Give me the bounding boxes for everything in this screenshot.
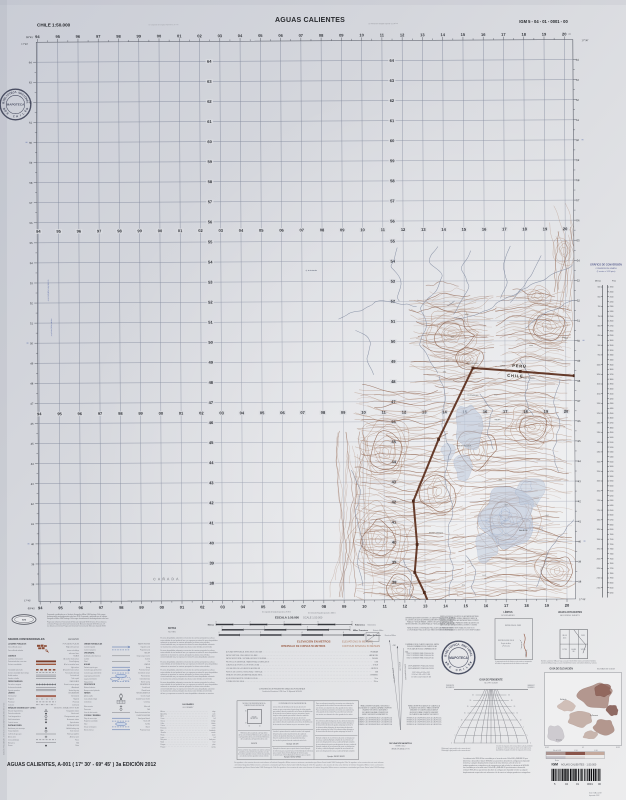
svg-text:Spring: Spring	[146, 667, 150, 669]
svg-text:Ejemplo: 345912 678345: Ejemplo: 345912 678345	[284, 757, 301, 759]
svg-text:2100: 2100	[597, 578, 601, 580]
svg-text:45: 45	[31, 442, 35, 446]
svg-text:PERÚ: PERÚ	[512, 363, 527, 369]
svg-text:10: 10	[461, 720, 463, 722]
svg-text:V. Tacora: V. Tacora	[556, 740, 562, 742]
svg-text:Pies: Pies	[612, 281, 616, 283]
svg-text:5067: 5067	[451, 336, 455, 338]
svg-text:02: 02	[200, 604, 205, 609]
svg-text:Tank reservoir: Tank reservoir	[70, 731, 80, 733]
svg-text:Kilómetros: Kilómetros	[355, 624, 365, 627]
svg-text:62: 62	[390, 98, 395, 103]
svg-text:Salar: Salar	[84, 724, 88, 726]
svg-text:7300: 7300	[610, 549, 614, 551]
svg-text:40: 40	[578, 539, 582, 543]
svg-text:39: 39	[578, 560, 582, 564]
svg-text:1300: 1300	[597, 423, 601, 425]
svg-text:6700: 6700	[610, 520, 614, 522]
svg-text:1600: 1600	[597, 481, 601, 483]
svg-text:61: 61	[29, 121, 33, 125]
svg-text:2000: 2000	[597, 558, 601, 560]
svg-text:7200: 7200	[610, 544, 614, 546]
svg-text:05: 05	[261, 604, 266, 609]
svg-text:3900: 3900	[610, 384, 614, 386]
svg-text:53: 53	[577, 279, 581, 283]
svg-text:Comunal: Comunal	[8, 704, 14, 706]
svg-text:15: 15	[464, 713, 466, 715]
svg-text:4.000: 4.000	[594, 750, 598, 752]
svg-text:Regional: Regional	[8, 699, 14, 701]
svg-text:4668: 4668	[482, 575, 486, 577]
svg-text:850: 850	[598, 335, 601, 337]
svg-text:Gorge canyon ravine: Gorge canyon ravine	[137, 655, 151, 657]
svg-text:98: 98	[118, 411, 123, 416]
svg-text:LUGARES POBLADOS: LUGARES POBLADOS	[8, 643, 27, 646]
svg-text:52: 52	[30, 301, 34, 305]
svg-text:3400: 3400	[610, 360, 614, 362]
svg-text:6600: 6600	[610, 515, 614, 517]
svg-text:Millas Terrestres: Millas Terrestres	[353, 629, 368, 632]
svg-text:CAMINOS: CAMINOS	[8, 654, 17, 657]
svg-text:6800: 6800	[610, 524, 614, 526]
svg-text:★: ★	[2, 107, 5, 111]
svg-text:3000: 3000	[610, 340, 614, 342]
svg-text:Mina socavón: Mina socavón	[84, 706, 93, 708]
svg-text:80: 80	[28, 543, 30, 545]
svg-text:04: 04	[241, 604, 246, 609]
svg-text:2050: 2050	[597, 568, 601, 570]
svg-text:10: 10	[360, 227, 365, 232]
svg-text:54: 54	[30, 261, 34, 265]
svg-text:69°45': 69°45'	[26, 35, 34, 39]
svg-text:04: 04	[240, 410, 245, 415]
svg-text:20: 20	[467, 706, 469, 708]
svg-text:06: 06	[281, 604, 286, 609]
svg-text:7500: 7500	[610, 558, 614, 560]
svg-text:56: 56	[390, 218, 395, 223]
svg-text:38: 38	[31, 582, 35, 586]
svg-text:54: 54	[390, 259, 395, 264]
svg-text:7800: 7800	[610, 573, 614, 575]
svg-text:Hito V Talakolpa: Hito V Talakolpa	[466, 362, 478, 365]
svg-text:1150: 1150	[597, 393, 601, 395]
svg-text:56: 56	[208, 219, 213, 224]
svg-text:Salar de Ajatire: Salar de Ajatire	[523, 376, 535, 379]
svg-text:place: place	[212, 716, 216, 718]
svg-text:Mal paso: Mal paso	[161, 739, 167, 741]
svg-text:51: 51	[391, 319, 396, 324]
svg-text:03: 03	[219, 228, 224, 233]
svg-text:06: 06	[280, 410, 285, 415]
svg-text:Ruins: Ruins	[75, 745, 79, 747]
svg-text:49: 49	[208, 360, 213, 365]
svg-text:38: 38	[210, 581, 215, 586]
svg-text:LÍMITES: LÍMITES	[8, 692, 16, 695]
svg-text:51: 51	[577, 319, 581, 323]
svg-text:6: 6	[343, 632, 344, 634]
svg-text:7600: 7600	[610, 563, 614, 565]
svg-text:DECLINACIÓN MAGNÉTICA: DECLINACIÓN MAGNÉTICA	[389, 742, 412, 745]
svg-text:10: 10	[361, 410, 366, 415]
svg-text:52: 52	[208, 300, 213, 305]
svg-text:19: 19	[543, 226, 548, 231]
svg-text:44: 44	[31, 462, 35, 466]
svg-text:LEGEND: LEGEND	[68, 637, 79, 641]
svg-text:ENERO 2012: ENERO 2012	[396, 746, 406, 748]
svg-text:IGM: IGM	[22, 620, 26, 622]
svg-text:61: 61	[207, 119, 212, 124]
svg-text:05: 05	[258, 33, 263, 38]
svg-text:Chaca: Chaca	[161, 720, 166, 722]
svg-text:NOTES: NOTES	[168, 631, 176, 633]
svg-text:Cueva: Cueva	[161, 725, 166, 727]
svg-text:4900: 4900	[610, 432, 614, 434]
svg-text:4000: 4000	[610, 389, 614, 391]
svg-text:Rocks cliff: Rocks cliff	[143, 721, 150, 723]
svg-text:N 364 m E 188 m 2012 N 364: N 364 m E 188 m 2012 N 364	[412, 674, 431, 676]
svg-text:09: 09	[341, 410, 346, 415]
svg-text:60: 60	[29, 141, 33, 145]
svg-text:5158: 5158	[499, 479, 503, 481]
svg-text:07: 07	[301, 604, 306, 609]
svg-text:Collo: Collo	[161, 723, 165, 725]
svg-text:5122: 5122	[506, 559, 510, 561]
svg-text:4800: 4800	[610, 427, 614, 429]
svg-text:GRÁFICO DE CONVERSIÓN: GRÁFICO DE CONVERSIÓN	[590, 264, 622, 267]
svg-text:VISVIRI: VISVIRI	[581, 649, 586, 651]
svg-text:Puquio: Puquio	[161, 746, 166, 748]
svg-text:Metros: Metros	[208, 624, 214, 627]
svg-text:02: 02	[199, 410, 204, 415]
svg-text:Ruinas: Ruinas	[8, 745, 13, 747]
svg-text:07: 07	[300, 410, 305, 415]
svg-text:60: 60	[576, 138, 580, 142]
svg-text:NOTAS: NOTAS	[168, 627, 177, 630]
svg-text:Huella sendero: Huella sendero	[8, 675, 18, 677]
svg-text:5203: 5203	[494, 394, 498, 396]
svg-text:INSTALACIONES: INSTALACIONES	[8, 724, 23, 727]
svg-text:5800: 5800	[610, 476, 614, 478]
svg-text:44: 44	[578, 459, 582, 463]
svg-text:1400: 1400	[597, 442, 601, 444]
svg-text:08: 08	[320, 227, 325, 232]
svg-text:Wila Burro: Wila Burro	[519, 530, 527, 532]
svg-text:30: 30	[470, 700, 472, 702]
svg-text:04: 04	[238, 33, 243, 38]
svg-text:Khala: Khala	[161, 735, 165, 737]
svg-text:5500: 5500	[610, 461, 614, 463]
svg-text:41: 41	[31, 522, 35, 526]
svg-text:17°45': 17°45'	[579, 598, 586, 601]
svg-text:2012 N 364 m E 188 m 2012: 2012 N 364 m E 188 m 2012	[412, 672, 430, 674]
svg-text:4100: 4100	[610, 393, 614, 395]
svg-text:8100: 8100	[610, 587, 614, 589]
svg-text:1200: 1200	[597, 403, 601, 405]
svg-text:Vilacollo: Vilacollo	[494, 419, 500, 421]
svg-text:3200: 3200	[610, 350, 614, 352]
svg-text:750: 750	[598, 316, 601, 318]
svg-text:50: 50	[577, 339, 581, 343]
svg-text:Muro pirca: Muro pirca	[8, 742, 15, 744]
svg-text:53: 53	[391, 279, 396, 284]
svg-text:Iglesia capilla: Iglesia capilla	[84, 696, 93, 698]
svg-text:700: 700	[598, 306, 601, 308]
svg-text:46: 46	[30, 422, 34, 426]
svg-text:0001: 0001	[587, 782, 593, 786]
svg-text:4398: 4398	[465, 314, 469, 316]
svg-text:60: 60	[207, 139, 212, 144]
svg-text:VEGETACION: VEGETACION	[84, 683, 96, 686]
svg-text:cave: cave	[212, 725, 215, 727]
svg-text:56: 56	[577, 218, 581, 222]
svg-text:GLOSARIO: GLOSARIO	[182, 703, 194, 706]
svg-text:53: 53	[30, 281, 34, 285]
svg-text:55: 55	[208, 239, 213, 244]
svg-text:47: 47	[209, 400, 214, 405]
svg-text:3600: 3600	[610, 369, 614, 371]
svg-text:41: 41	[578, 519, 582, 523]
svg-text:CHILE 1:50.000: CHILE 1:50.000	[37, 22, 71, 27]
svg-text:4.500: 4.500	[574, 750, 578, 752]
svg-text:GLOSSARY: GLOSSARY	[183, 706, 195, 709]
svg-text:3700: 3700	[610, 374, 614, 376]
svg-text:Metros: Metros	[595, 280, 601, 283]
svg-text:E: E	[372, 644, 373, 646]
svg-text:6100: 6100	[610, 490, 614, 492]
svg-text:4200: 4200	[610, 398, 614, 400]
svg-text:4400: 4400	[610, 408, 614, 410]
svg-text:plain: plain	[212, 744, 215, 746]
svg-text:2000: 2000	[610, 292, 614, 294]
svg-text:48: 48	[391, 379, 396, 384]
svg-text:AGUAS CALIENTES, A-001 ( 17° 3: AGUAS CALIENTES, A-001 ( 17° 30' - 69° 4…	[7, 760, 156, 768]
svg-text:CONVERSIÓN DE PENDIENTES GRADO: CONVERSIÓN DE PENDIENTES GRADOS A PORCEN…	[259, 687, 306, 690]
svg-text:60: 60	[390, 138, 395, 143]
svg-text:COSTAS Y RIBERAS: COSTAS Y RIBERAS	[84, 714, 101, 717]
svg-text:55: 55	[577, 238, 581, 242]
svg-text:15: 15	[517, 713, 519, 715]
svg-text:Scrub brush: Scrub brush	[142, 687, 150, 689]
svg-text:ESCALA 1:50.000: ESCALA 1:50.000	[275, 616, 299, 620]
svg-text:7400: 7400	[610, 554, 614, 556]
svg-text:TERRENO: TERRENO	[370, 675, 378, 677]
svg-text:8200: 8200	[610, 592, 614, 594]
svg-text:5268: 5268	[562, 337, 566, 339]
svg-text:4700: 4700	[610, 423, 614, 425]
svg-text:17°30': 17°30'	[21, 43, 28, 46]
svg-text:5300: 5300	[610, 452, 614, 454]
svg-text:48: 48	[30, 382, 34, 386]
svg-text:METROS: METROS	[371, 668, 378, 670]
svg-text:SEÑALES GEODESICAS Y COTAS: SEÑALES GEODESICAS Y COTAS	[8, 706, 36, 709]
svg-text:4300: 4300	[610, 403, 614, 405]
svg-text:05: 05	[260, 410, 265, 415]
svg-text:57: 57	[390, 198, 395, 203]
svg-text:RELIEF: RELIEF	[144, 652, 150, 654]
svg-text:4500: 4500	[610, 413, 614, 415]
svg-text:1750: 1750	[597, 510, 601, 512]
svg-text:38: 38	[578, 580, 582, 584]
svg-text:08: 08	[322, 604, 327, 609]
svg-text:GUÍA DE ELEVACIÓN: GUÍA DE ELEVACIÓN	[550, 667, 574, 670]
svg-text:7700: 7700	[610, 568, 614, 570]
svg-text:Kilometers: Kilometers	[368, 624, 377, 627]
svg-text:Sendero o huella: Sendero o huella	[8, 678, 19, 680]
svg-text:1800: 1800	[597, 520, 601, 522]
svg-text:GUÍA DE PENDIENTE: GUÍA DE PENDIENTE	[479, 679, 503, 682]
svg-text:12: 12	[400, 32, 405, 37]
svg-text:49: 49	[577, 359, 581, 363]
svg-text:80: 80	[27, 343, 29, 345]
svg-text:52: 52	[391, 299, 396, 304]
svg-text:CONTOUR INTERVAL 50 METERS: CONTOUR INTERVAL 50 METERS	[342, 645, 380, 648]
svg-text:IGM 5 - 04 - 01 - 0001 - 00: IGM 5 - 04 - 01 - 0001 - 00	[519, 19, 568, 24]
svg-text:57: 57	[208, 199, 213, 204]
svg-text:45: 45	[508, 695, 510, 697]
svg-text:1050: 1050	[597, 374, 601, 376]
svg-text:45: 45	[209, 440, 214, 445]
svg-text:Marsh swamp: Marsh swamp	[141, 681, 150, 683]
svg-text:ADJOINING SHEETS: ADJOINING SHEETS	[560, 614, 580, 617]
svg-text:INTERVALO DE CURVAS 50 METROS: INTERVALO DE CURVAS 50 METROS	[281, 645, 326, 648]
svg-text:Millas Náuticas: Millas Náuticas	[367, 634, 381, 637]
svg-text:57: 57	[576, 198, 580, 202]
svg-text:2100: 2100	[610, 296, 614, 298]
svg-text:42: 42	[31, 502, 35, 506]
svg-text:FERROCARRILES: FERROCARRILES	[8, 680, 23, 683]
svg-text:345 678: 345 678	[251, 743, 257, 745]
svg-text:1500: 1500	[597, 461, 601, 463]
svg-text:Talud: Talud	[84, 661, 88, 663]
svg-text:★: ★	[396, 647, 398, 650]
svg-text:47: 47	[30, 402, 34, 406]
svg-text:43: 43	[209, 480, 214, 485]
svg-text:2300: 2300	[610, 306, 614, 308]
svg-text:1100: 1100	[597, 384, 601, 386]
svg-text:1000: 1000	[597, 364, 601, 366]
svg-text:00: 00	[157, 34, 162, 39]
svg-text:44: 44	[209, 460, 214, 465]
svg-text:07: 07	[300, 228, 305, 233]
svg-text:09: 09	[342, 604, 347, 609]
svg-text:★: ★	[25, 107, 28, 111]
svg-text:LÍMITES: LÍMITES	[503, 611, 513, 614]
svg-text:55: 55	[30, 241, 34, 245]
svg-text:43: 43	[31, 482, 35, 486]
svg-text:43: 43	[578, 479, 582, 483]
svg-text:51: 51	[30, 321, 34, 325]
svg-text:49: 49	[391, 359, 396, 364]
svg-text:49: 49	[30, 361, 34, 365]
svg-text:10: 10	[359, 33, 364, 38]
svg-text:Más de 5.000: Más de 5.000	[553, 750, 561, 752]
svg-text:Co Paucarani: Co Paucarani	[467, 395, 478, 397]
svg-text:54: 54	[577, 258, 581, 262]
svg-text:02: 02	[198, 228, 203, 233]
svg-text:DEGREES: DEGREES	[528, 687, 535, 689]
svg-text:45: 45	[472, 695, 474, 697]
svg-text:3300: 3300	[610, 355, 614, 357]
svg-text:2600: 2600	[610, 321, 614, 323]
svg-text:58: 58	[390, 178, 395, 183]
svg-text:54: 54	[208, 259, 213, 264]
svg-text:5400: 5400	[610, 457, 614, 459]
svg-text:1550: 1550	[597, 471, 601, 473]
svg-text:7000: 7000	[610, 534, 614, 536]
svg-text:63: 63	[576, 78, 580, 82]
svg-text:53: 53	[208, 280, 213, 285]
svg-text:05: 05	[259, 228, 264, 233]
svg-text:SIGNOS CONVENCIONALES: SIGNOS CONVENCIONALES	[8, 637, 45, 641]
svg-text:Glacier: Glacier	[145, 727, 150, 729]
svg-text:1850: 1850	[597, 529, 601, 531]
svg-text:A LA PAZ (BOLIVIA) 195 Km: A LA PAZ (BOLIVIA) 195 Km	[47, 279, 50, 301]
svg-text:46: 46	[209, 420, 214, 425]
svg-text:2800: 2800	[610, 330, 614, 332]
svg-text:10: 10	[362, 604, 367, 609]
svg-text:6400: 6400	[610, 505, 614, 507]
svg-text:2700: 2700	[610, 326, 614, 328]
svg-text:62: 62	[207, 99, 212, 104]
svg-text:PUTRE: PUTRE	[562, 649, 567, 651]
svg-text:OBRAS HIDRAULICAS: OBRAS HIDRAULICAS	[84, 643, 103, 646]
svg-text:CAÑADA: CAÑADA	[153, 576, 180, 581]
svg-text:Canal de regadío: Canal de regadío	[84, 647, 95, 649]
svg-text:Co Paucarani: Co Paucarani	[590, 715, 599, 717]
svg-text:bad pass: bad pass	[209, 739, 215, 741]
svg-text:7100: 7100	[610, 539, 614, 541]
svg-text:00: 00	[159, 411, 164, 416]
svg-text:4690.9: 4690.9	[500, 365, 505, 367]
svg-text:Cumbre: Cumbre	[84, 658, 89, 660]
svg-text:CHILE: CHILE	[507, 373, 523, 379]
svg-text:07: 07	[299, 33, 304, 38]
svg-text:80: 80	[582, 139, 584, 141]
svg-text:600: 600	[598, 287, 601, 289]
svg-text:19: 19	[542, 32, 547, 37]
svg-text:Sand gravel beach: Sand gravel beach	[138, 718, 150, 720]
svg-text:650: 650	[598, 296, 601, 298]
svg-text:Playa de arena ripio: Playa de arena ripio	[84, 718, 97, 720]
svg-text:Regional: Regional	[73, 699, 79, 701]
svg-text:10: 10	[520, 720, 522, 722]
svg-text:64: 64	[389, 58, 394, 63]
svg-text:7900: 7900	[610, 578, 614, 580]
svg-text:BOUNDARIES: BOUNDARIES	[501, 614, 515, 617]
svg-text:50: 50	[30, 341, 34, 345]
svg-text:N: N	[364, 634, 365, 636]
svg-text:4: 4	[307, 627, 308, 629]
svg-text:30: 30	[511, 700, 513, 702]
svg-text:PENDIENTE: PENDIENTE	[446, 685, 454, 687]
svg-text:63: 63	[29, 81, 33, 85]
svg-text:1350: 1350	[597, 432, 601, 434]
svg-text:2900: 2900	[610, 335, 614, 337]
svg-text:Perennial lake: Perennial lake	[141, 676, 150, 678]
svg-text:800: 800	[598, 326, 601, 328]
svg-text:1900: 1900	[610, 287, 614, 289]
svg-text:12: 12	[403, 604, 408, 609]
svg-text:63: 63	[207, 79, 212, 84]
svg-text:900: 900	[598, 345, 601, 347]
svg-text:57: 57	[29, 201, 33, 205]
svg-text:4367: 4367	[546, 515, 550, 517]
svg-text:06: 06	[279, 228, 284, 233]
svg-text:40: 40	[31, 542, 35, 546]
svg-text:VARIOS: VARIOS	[84, 692, 91, 695]
svg-text:58: 58	[576, 178, 580, 182]
svg-text:39: 39	[209, 560, 214, 565]
